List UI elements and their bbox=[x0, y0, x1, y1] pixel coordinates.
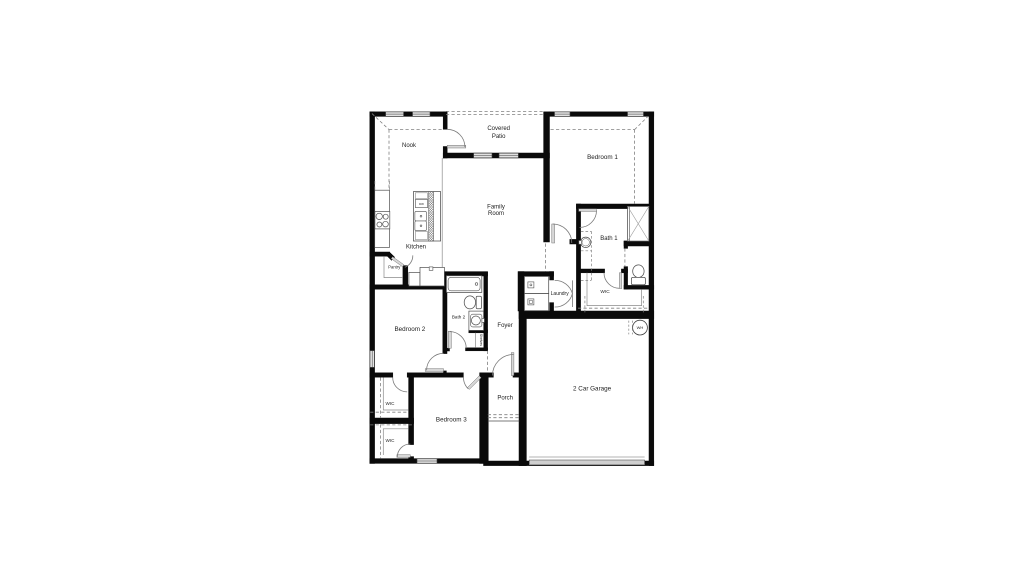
svg-text:Family: Family bbox=[487, 204, 505, 210]
svg-text:Bath 2: Bath 2 bbox=[452, 315, 466, 320]
svg-text:Room: Room bbox=[488, 211, 504, 217]
svg-text:WH: WH bbox=[637, 325, 644, 330]
svg-text:WIC: WIC bbox=[386, 438, 396, 443]
svg-text:WIC: WIC bbox=[386, 401, 396, 406]
svg-text:DW: DW bbox=[419, 202, 424, 206]
svg-text:Laundry: Laundry bbox=[551, 291, 570, 297]
svg-text:Patio: Patio bbox=[492, 134, 506, 140]
svg-text:WIC: WIC bbox=[600, 289, 610, 295]
svg-text:Covered: Covered bbox=[487, 126, 510, 132]
svg-text:Porch: Porch bbox=[497, 395, 513, 401]
svg-text:Bath 1: Bath 1 bbox=[600, 236, 618, 242]
svg-text:Foyer: Foyer bbox=[497, 323, 512, 329]
svg-text:Bedroom 1: Bedroom 1 bbox=[587, 154, 618, 161]
svg-text:Pantry: Pantry bbox=[388, 265, 401, 270]
svg-text:Bedroom 2: Bedroom 2 bbox=[394, 326, 425, 333]
svg-text:Kitchen: Kitchen bbox=[406, 245, 426, 251]
svg-text:2 Car Garage: 2 Car Garage bbox=[573, 386, 612, 393]
svg-text:Bedroom 3: Bedroom 3 bbox=[436, 416, 467, 423]
svg-text:Nook: Nook bbox=[402, 143, 417, 149]
svg-text:Shelves: Shelves bbox=[479, 334, 483, 346]
